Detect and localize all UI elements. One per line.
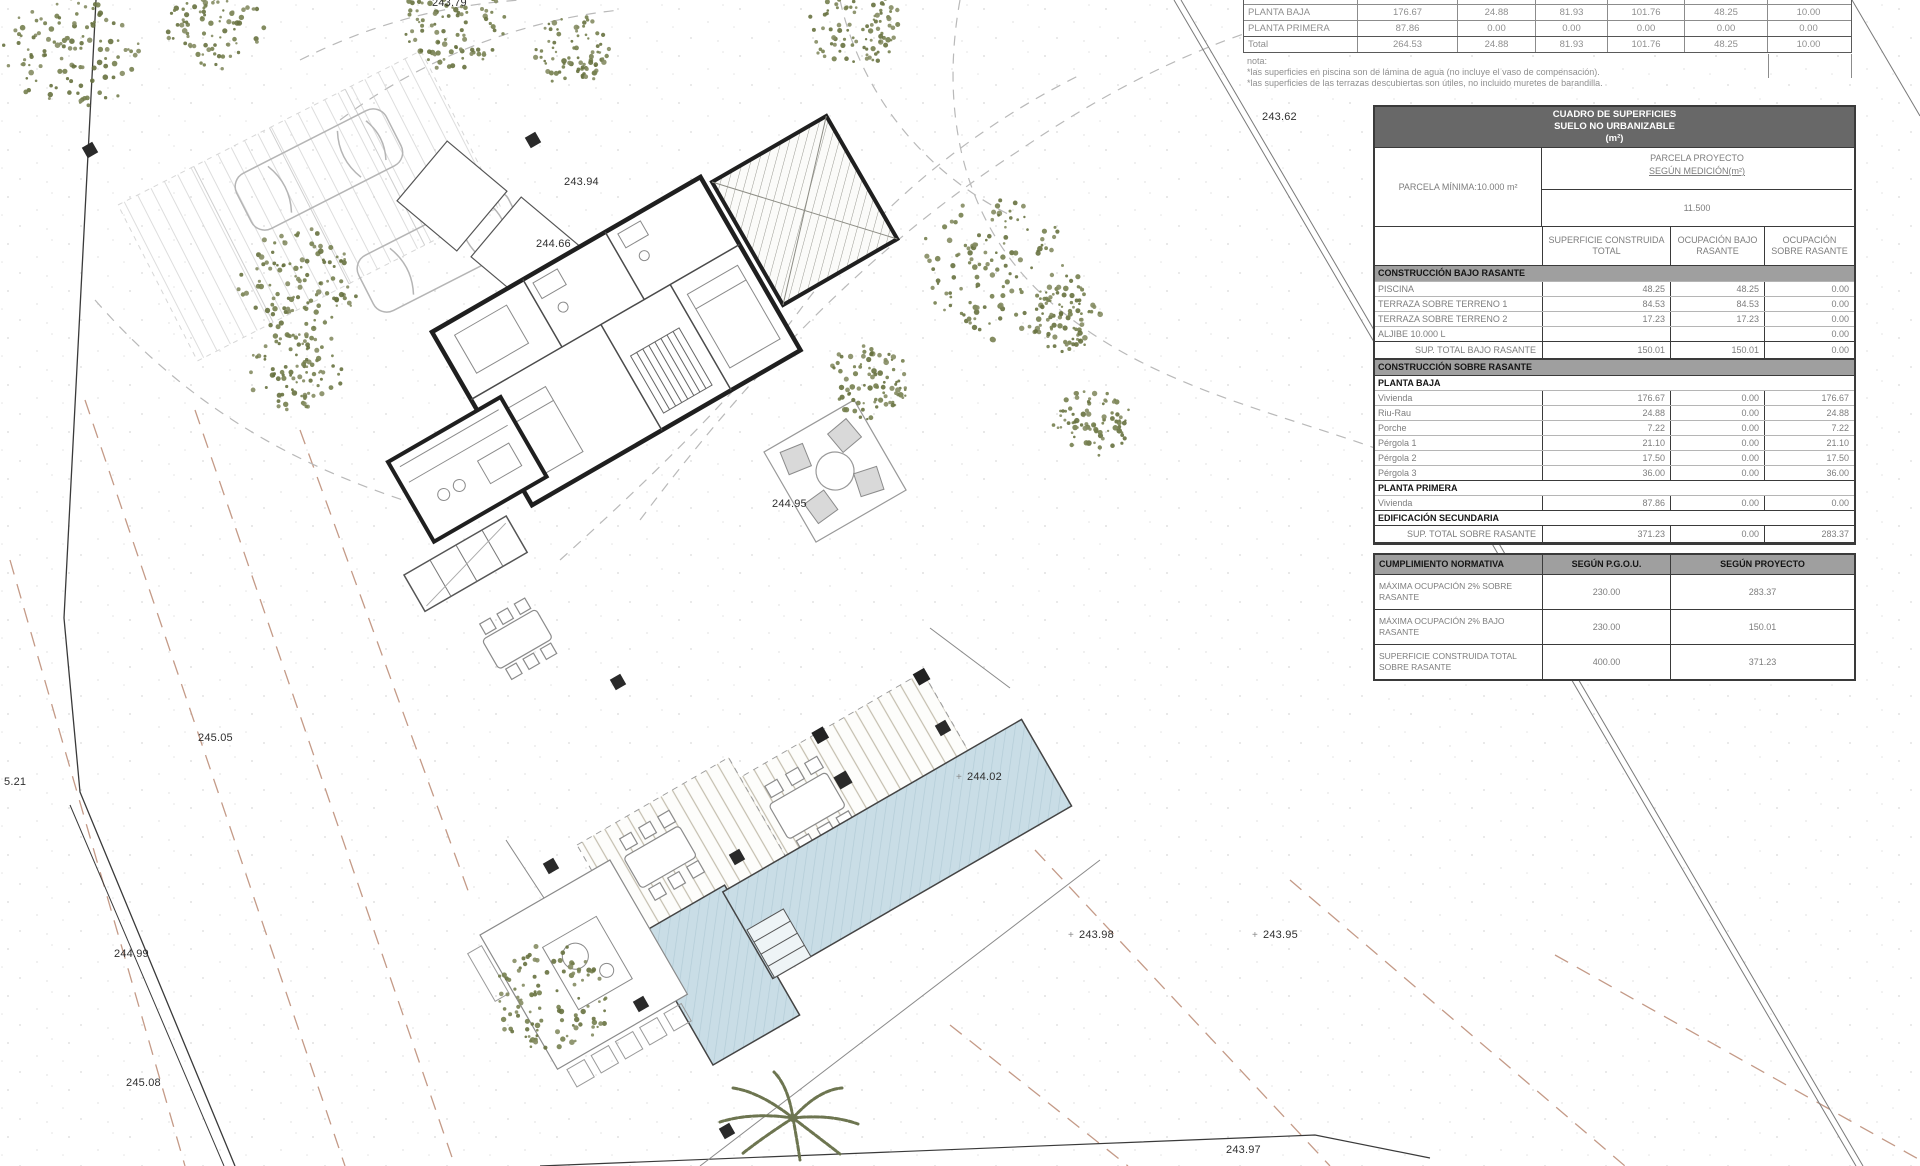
- proyecto-value: 371.23: [1670, 645, 1854, 679]
- elevation-label: 243.97: [1226, 1144, 1261, 1156]
- sub-header: PLANTA PRIMERA: [1375, 480, 1854, 495]
- pgou-value: 230.00: [1542, 610, 1670, 644]
- elevation-label: 244.66: [536, 238, 571, 250]
- cross-mark: +: [1068, 930, 1074, 941]
- cuadro-de-superficies-table: CUADRO DE SUPERFICIES SUELO NO URBANIZAB…: [1373, 105, 1856, 545]
- row-label: Riu-Rau: [1375, 406, 1542, 420]
- elevation-label: 245.05: [198, 732, 233, 744]
- row-label: SUPERFICIE CONSTRUIDA TOTAL SOBRE RASANT…: [1375, 645, 1542, 679]
- value-cell: 17.23: [1542, 312, 1670, 326]
- column-headers: SUPERFICIE CONSTRUIDA TOTAL OCUPACIÓN BA…: [1375, 226, 1854, 265]
- cross-mark: +: [1252, 930, 1258, 941]
- value-cell: 87.86: [1357, 21, 1457, 36]
- value-cell: 0.00: [1670, 466, 1764, 480]
- table-cell: [1535, 0, 1607, 4]
- value-cell: 0.00: [1670, 451, 1764, 465]
- value-cell: 0.00: [1670, 526, 1764, 542]
- table-row: Pérgola 121.100.0021.10: [1375, 435, 1854, 450]
- value-cell: [1670, 327, 1764, 341]
- note-line: *las superficies de las terrazas descubi…: [1247, 78, 1767, 89]
- value-cell: 0.00: [1764, 327, 1854, 341]
- value-cell: 48.25: [1684, 37, 1767, 52]
- parcela-minima-label: PARCELA MÍNIMA:10.000 m²: [1375, 148, 1542, 226]
- elevation-label: +244.02: [956, 771, 1002, 783]
- row-label: PLANTA PRIMERA: [1244, 21, 1357, 36]
- value-cell: 17.50: [1764, 451, 1854, 465]
- value-cell: 21.10: [1764, 436, 1854, 450]
- value-cell: 84.53: [1670, 297, 1764, 311]
- elevation-label: +243.95: [1252, 929, 1298, 941]
- elevation-label: 245.08: [126, 1077, 161, 1089]
- col-header: SEGÚN P.G.O.U.: [1542, 555, 1670, 574]
- elevation-label: 243.62: [1262, 111, 1297, 123]
- table-notes: nota: *las superficies en piscina son de…: [1247, 56, 1767, 89]
- row-label: Vivienda: [1375, 391, 1542, 405]
- elevation-label: 243.79: [432, 0, 467, 9]
- value-cell: 24.88: [1457, 37, 1535, 52]
- row-label: SUP. TOTAL SOBRE RASANTE: [1375, 526, 1542, 542]
- total-row: SUP. TOTAL SOBRE RASANTE371.230.00283.37: [1375, 525, 1854, 543]
- areas-summary-table: PLANTA BAJA176.6724.8881.93101.7648.2510…: [1243, 0, 1852, 53]
- nota-label: nota:: [1247, 56, 1767, 67]
- top-table-row: PLANTA PRIMERA87.860.000.000.000.000.00: [1244, 20, 1851, 36]
- table-row: Vivienda176.670.00176.67: [1375, 390, 1854, 405]
- row-label: Pérgola 2: [1375, 451, 1542, 465]
- compliance-row: MÁXIMA OCUPACIÓN 2% SOBRE RASANTE230.002…: [1375, 574, 1854, 609]
- table-row: ALJIBE 10.000 L0.00: [1375, 326, 1854, 341]
- table-cell: [1767, 0, 1849, 4]
- table-cell: [1357, 0, 1457, 4]
- value-cell: 264.53: [1357, 37, 1457, 52]
- value-cell: 81.93: [1535, 5, 1607, 20]
- top-table-row: Total264.5324.8881.93101.7648.2510.00: [1244, 36, 1851, 52]
- value-cell: 0.00: [1457, 21, 1535, 36]
- value-cell: 24.88: [1542, 406, 1670, 420]
- row-label: SUP. TOTAL BAJO RASANTE: [1375, 342, 1542, 358]
- row-label: MÁXIMA OCUPACIÓN 2% SOBRE RASANTE: [1375, 575, 1542, 609]
- value-cell: 0.00: [1535, 21, 1607, 36]
- value-cell: 150.01: [1670, 342, 1764, 358]
- sub-header: EDIFICACIÓN SECUNDARIA: [1375, 510, 1854, 525]
- value-cell: 36.00: [1764, 466, 1854, 480]
- value-cell: 81.93: [1535, 37, 1607, 52]
- value-cell: 0.00: [1670, 406, 1764, 420]
- table-title: CUADRO DE SUPERFICIES SUELO NO URBANIZAB…: [1375, 107, 1854, 147]
- value-cell: 0.00: [1767, 21, 1849, 36]
- elevation-label: 5.21: [4, 776, 26, 788]
- value-cell: 0.00: [1764, 297, 1854, 311]
- row-label: Porche: [1375, 421, 1542, 435]
- row-label: TERRAZA SOBRE TERRENO 2: [1375, 312, 1542, 326]
- value-cell: 371.23: [1542, 526, 1670, 542]
- value-cell: 176.67: [1542, 391, 1670, 405]
- table-rule: [1768, 54, 1769, 78]
- total-row: SUP. TOTAL BAJO RASANTE150.01150.010.00: [1375, 341, 1854, 359]
- value-cell: 10.00: [1767, 5, 1849, 20]
- row-label: PISCINA: [1375, 282, 1542, 296]
- table-row: Pérgola 217.500.0017.50: [1375, 450, 1854, 465]
- value-cell: 0.00: [1764, 282, 1854, 296]
- table-row: TERRAZA SOBRE TERRENO 184.5384.530.00: [1375, 296, 1854, 311]
- table-row: Pérgola 336.000.0036.00: [1375, 465, 1854, 480]
- row-label: Pérgola 3: [1375, 466, 1542, 480]
- value-cell: 17.23: [1670, 312, 1764, 326]
- value-cell: 24.88: [1457, 5, 1535, 20]
- cross-mark: +: [956, 772, 962, 783]
- cumplimiento-normativa-table: CUMPLIMIENTO NORMATIVA SEGÚN P.G.O.U. SE…: [1373, 553, 1856, 681]
- value-cell: 24.88: [1764, 406, 1854, 420]
- value-cell: 48.25: [1670, 282, 1764, 296]
- elevation-label: 243.94: [564, 176, 599, 188]
- top-table-partial-row: [1244, 0, 1851, 4]
- proyecto-value: 150.01: [1670, 610, 1854, 644]
- col-header: OCUPACIÓN BAJO RASANTE: [1670, 227, 1764, 265]
- section-header: CONSTRUCCIÓN SOBRE RASANTE: [1375, 359, 1854, 375]
- table-cell: [1607, 0, 1684, 4]
- value-cell: 0.00: [1607, 21, 1684, 36]
- row-label: Pérgola 1: [1375, 436, 1542, 450]
- compliance-row: SUPERFICIE CONSTRUIDA TOTAL SOBRE RASANT…: [1375, 644, 1854, 679]
- value-cell: 176.67: [1764, 391, 1854, 405]
- row-label: ALJIBE 10.000 L: [1375, 327, 1542, 341]
- value-cell: 0.00: [1764, 312, 1854, 326]
- table-rule: [1851, 54, 1852, 78]
- table-cell: [1684, 0, 1767, 4]
- col-header: CUMPLIMIENTO NORMATIVA: [1375, 555, 1542, 574]
- value-cell: 283.37: [1764, 526, 1854, 542]
- row-label: PLANTA BAJA: [1244, 5, 1357, 20]
- row-label: TERRAZA SOBRE TERRENO 1: [1375, 297, 1542, 311]
- table-row: Riu-Rau24.880.0024.88: [1375, 405, 1854, 420]
- table-row: PISCINA48.2548.250.00: [1375, 281, 1854, 296]
- value-cell: 87.86: [1542, 496, 1670, 510]
- value-cell: 0.00: [1764, 496, 1854, 510]
- value-cell: 101.76: [1607, 37, 1684, 52]
- site-plan-sheet: { "top_table": { "rows": [ {"label": "PL…: [0, 0, 1920, 1166]
- table-cell: [1457, 0, 1535, 4]
- parcela-proyecto-value: 11.500: [1542, 190, 1852, 226]
- value-cell: 36.00: [1542, 466, 1670, 480]
- parcela-row: PARCELA MÍNIMA:10.000 m² PARCELA PROYECT…: [1375, 147, 1854, 226]
- row-label: MÁXIMA OCUPACIÓN 2% BAJO RASANTE: [1375, 610, 1542, 644]
- top-table-row: PLANTA BAJA176.6724.8881.93101.7648.2510…: [1244, 4, 1851, 20]
- pgou-value: 230.00: [1542, 575, 1670, 609]
- compliance-headers: CUMPLIMIENTO NORMATIVA SEGÚN P.G.O.U. SE…: [1375, 555, 1854, 574]
- value-cell: 0.00: [1684, 21, 1767, 36]
- col-header: OCUPACIÓN SOBRE RASANTE: [1764, 227, 1854, 265]
- col-header: SEGÚN PROYECTO: [1670, 555, 1854, 574]
- value-cell: 84.53: [1542, 297, 1670, 311]
- value-cell: 0.00: [1670, 496, 1764, 510]
- value-cell: 0.00: [1670, 436, 1764, 450]
- value-cell: 7.22: [1764, 421, 1854, 435]
- row-label: Total: [1244, 37, 1357, 52]
- value-cell: 0.00: [1670, 421, 1764, 435]
- table-row: Porche7.220.007.22: [1375, 420, 1854, 435]
- value-cell: 150.01: [1542, 342, 1670, 358]
- row-label: Vivienda: [1375, 496, 1542, 510]
- pgou-value: 400.00: [1542, 645, 1670, 679]
- compliance-row: MÁXIMA OCUPACIÓN 2% BAJO RASANTE230.0015…: [1375, 609, 1854, 644]
- parcela-proyecto-label: PARCELA PROYECTO SEGÚN MEDICIÓN(m²): [1542, 148, 1852, 190]
- value-cell: 0.00: [1670, 391, 1764, 405]
- elevation-label: +243.98: [1068, 929, 1114, 941]
- value-cell: 176.67: [1357, 5, 1457, 20]
- elevation-label: 244.95: [772, 498, 807, 510]
- table-cell: [1244, 0, 1357, 4]
- section-header: CONSTRUCCIÓN BAJO RASANTE: [1375, 265, 1854, 281]
- proyecto-value: 283.37: [1670, 575, 1854, 609]
- table-row: Vivienda87.860.000.00: [1375, 495, 1854, 510]
- value-cell: 48.25: [1684, 5, 1767, 20]
- value-cell: 7.22: [1542, 421, 1670, 435]
- elevation-label: 244.99: [114, 948, 149, 960]
- sub-header: PLANTA BAJA: [1375, 375, 1854, 390]
- value-cell: 101.76: [1607, 5, 1684, 20]
- value-cell: 48.25: [1542, 282, 1670, 296]
- value-cell: 10.00: [1767, 37, 1849, 52]
- value-cell: 17.50: [1542, 451, 1670, 465]
- value-cell: 21.10: [1542, 436, 1670, 450]
- col-header: SUPERFICIE CONSTRUIDA TOTAL: [1542, 227, 1670, 265]
- table-row: TERRAZA SOBRE TERRENO 217.2317.230.00: [1375, 311, 1854, 326]
- value-cell: 0.00: [1764, 342, 1854, 358]
- value-cell: [1542, 327, 1670, 341]
- note-line: *las superficies en piscina son de lámin…: [1247, 67, 1767, 78]
